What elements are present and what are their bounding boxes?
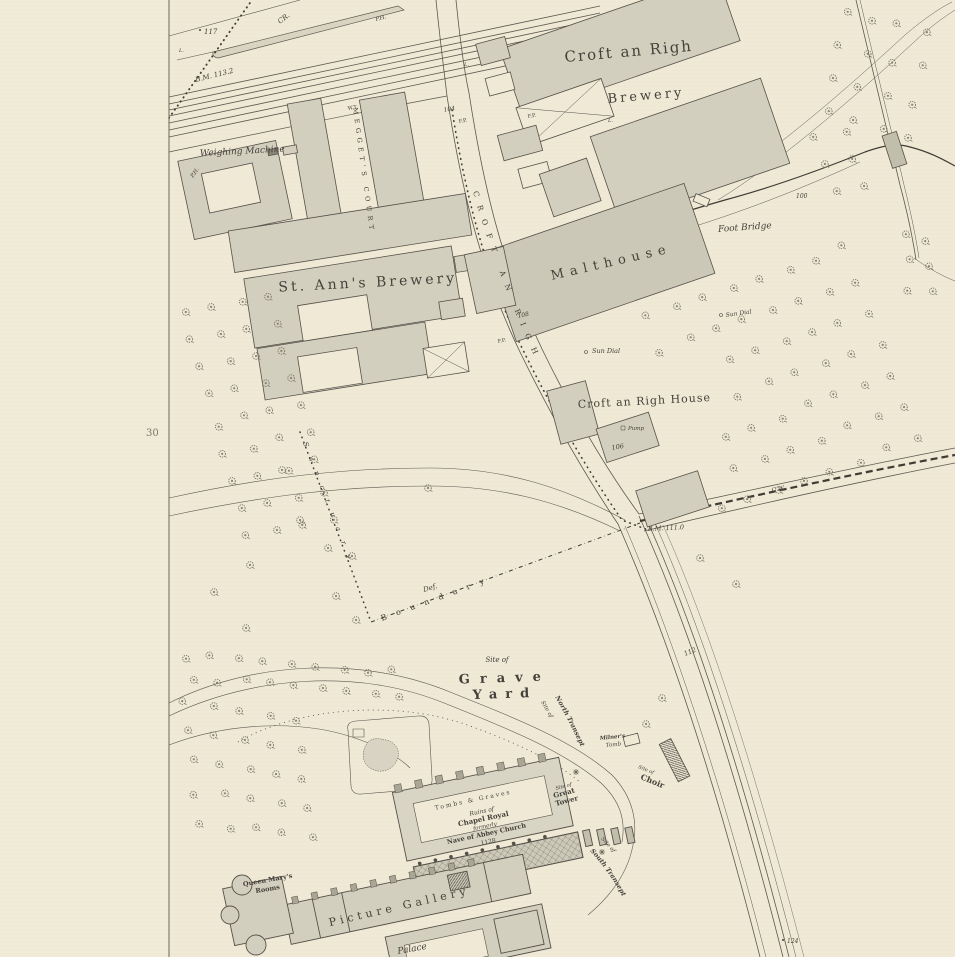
- tree-symbol: [216, 761, 224, 768]
- tree-symbol: [805, 400, 813, 407]
- fp-3: F.P.: [497, 337, 507, 345]
- tree-symbol: [253, 824, 261, 831]
- tree-symbol: [834, 42, 842, 49]
- tree-symbol: [826, 108, 834, 115]
- tree-symbol: [858, 459, 866, 466]
- tree-symbol: [809, 329, 817, 336]
- tree-symbol: [320, 685, 328, 692]
- tree-symbol: [227, 358, 235, 365]
- tree-symbol: [843, 129, 851, 136]
- tree-symbol: [273, 771, 281, 778]
- tree-symbol: [231, 385, 239, 392]
- tree-symbol: [298, 776, 306, 783]
- tree-symbol: [307, 429, 315, 436]
- tree-symbol: [259, 658, 267, 665]
- boundary-label: Boundary: [380, 573, 495, 623]
- tree-symbol: [242, 532, 250, 539]
- tree-symbol: [243, 625, 251, 632]
- tree-symbol: [834, 320, 842, 327]
- tree-symbol: [823, 360, 831, 367]
- tree-symbol: [312, 664, 320, 671]
- tree-symbol: [848, 351, 856, 358]
- tree-symbol: [697, 555, 705, 562]
- tree-symbol: [247, 795, 255, 802]
- tree-symbol: [901, 404, 909, 411]
- north-transept-site-of: Site of: [539, 700, 554, 720]
- tree-symbol: [822, 161, 830, 168]
- tree-symbol: [861, 183, 869, 190]
- tree-symbol: [289, 661, 297, 668]
- tree-symbol: [906, 256, 914, 263]
- tree-symbol: [211, 589, 219, 596]
- tree-symbol: [730, 465, 738, 472]
- cw-label: C.W.: [771, 485, 785, 494]
- tree-symbol: [766, 378, 774, 385]
- tree-symbol: [915, 435, 923, 442]
- tree-symbol: [297, 517, 305, 524]
- tree-symbol: [723, 434, 731, 441]
- tree-symbol: [196, 821, 204, 828]
- tree-symbol: [893, 20, 901, 27]
- tree-symbol: [727, 356, 735, 363]
- benchmark-north: B.M. 113.2: [194, 67, 235, 85]
- tree-symbol: [659, 695, 667, 702]
- tree-symbol: [905, 135, 913, 142]
- tree-symbol: [795, 298, 803, 305]
- foot-bridge-symbol: [693, 194, 710, 207]
- tree-symbol: [206, 390, 214, 397]
- tree-symbol: [889, 59, 897, 66]
- tree-symbol: [241, 412, 249, 419]
- tree-symbol: [215, 423, 223, 430]
- croft-house-label: Croft an Righ House: [577, 391, 711, 411]
- sheet-margin-number-2: 30: [146, 428, 159, 439]
- tree-symbol: [783, 338, 791, 345]
- tree-symbol: [748, 425, 756, 432]
- tree-symbol: [885, 93, 893, 100]
- tree-symbol: [254, 473, 262, 480]
- graveyard-site-of: Site of: [485, 656, 509, 664]
- tree-symbol: [887, 373, 895, 380]
- tree-symbol: [699, 294, 707, 301]
- tree-symbol: [251, 445, 259, 452]
- tree-symbol: [219, 451, 227, 458]
- tree-symbol: [919, 62, 927, 69]
- wall-bridge: [882, 131, 907, 168]
- tree-symbol: [922, 238, 930, 245]
- road-south-east: [618, 516, 804, 957]
- tree-symbol: [838, 242, 846, 249]
- spot-height-124: 124: [787, 938, 799, 945]
- tree-symbol: [850, 117, 858, 124]
- spot-height-117: 117: [204, 28, 218, 36]
- pump-label: Pump: [627, 426, 644, 432]
- north-transept-label: North Transept: [553, 693, 587, 748]
- graveyard-yard: Yard: [471, 686, 537, 703]
- tree-symbol: [310, 834, 318, 841]
- tree-symbol: [214, 679, 222, 686]
- spot-height-104: 104: [443, 105, 456, 114]
- tree-symbol: [388, 666, 396, 673]
- tree-symbol: [826, 469, 834, 476]
- roadside-building: [659, 739, 690, 782]
- railway-siding: [213, 6, 404, 58]
- tree-symbol: [833, 188, 841, 195]
- tree-symbol: [191, 756, 199, 763]
- tree-symbol: [286, 467, 294, 474]
- croft-brewery-label-2: Brewery: [607, 85, 685, 107]
- tree-symbol: [239, 505, 247, 512]
- fp-1: F.P.: [458, 118, 468, 125]
- milners-tomb-symbol: [623, 733, 640, 746]
- tree-symbol: [299, 747, 307, 754]
- buildings-layer: [178, 0, 907, 782]
- tree-symbol: [733, 581, 741, 588]
- tree-symbol: [208, 304, 216, 311]
- tree-symbol: [343, 688, 351, 695]
- tree-symbol: [810, 134, 818, 141]
- tree-symbol: [264, 500, 272, 507]
- tree-symbol: [643, 721, 651, 728]
- map-sheet[interactable]: 30 117 CR. B.M. 113.2 P.H. P.H. Weighing…: [0, 0, 955, 957]
- tree-symbol: [222, 790, 230, 797]
- milners-tomb-label-1: Milner's: [599, 733, 626, 742]
- tree-symbol: [904, 287, 912, 294]
- sun-dial-2-label: Sun Dial: [592, 347, 620, 355]
- tree-symbol: [830, 75, 838, 82]
- lamp-2: L.: [463, 62, 469, 68]
- garden-mound: [363, 739, 398, 771]
- tree-symbol: [185, 727, 193, 734]
- tree-symbol: [909, 101, 917, 108]
- tree-symbol: [791, 369, 799, 376]
- tree-symbol: [373, 691, 381, 698]
- shrub-symbol: [573, 769, 579, 775]
- tree-symbol: [752, 347, 760, 354]
- tree-symbol: [279, 800, 287, 807]
- tree-symbol: [243, 326, 251, 333]
- tree-symbol: [930, 288, 938, 295]
- tree-symbol: [278, 829, 286, 836]
- tree-symbol: [229, 478, 237, 485]
- sanctuary-label: Sanctuary: [301, 441, 357, 570]
- tree-symbol: [656, 349, 664, 356]
- tree-symbol: [875, 413, 883, 420]
- map-svg: 30 117 CR. B.M. 113.2 P.H. P.H. Weighing…: [0, 0, 955, 957]
- tree-symbol: [756, 276, 764, 283]
- tree-symbol: [325, 545, 333, 552]
- tree-symbol: [883, 444, 891, 451]
- tree-symbol: [267, 742, 275, 749]
- tree-symbol: [903, 231, 911, 238]
- tree-symbol: [844, 422, 852, 429]
- tree-symbol: [819, 437, 827, 444]
- tree-symbol: [341, 667, 349, 674]
- tree-symbol: [827, 289, 835, 296]
- tree-symbol: [242, 737, 250, 744]
- tree-symbol: [183, 309, 191, 316]
- tree-symbol: [731, 285, 739, 292]
- lamp-3: L.: [607, 118, 613, 124]
- tree-symbol: [674, 303, 682, 310]
- tree-symbol: [179, 698, 187, 705]
- tree-symbol: [190, 791, 198, 798]
- tree-symbol: [304, 805, 312, 812]
- foot-bridge-label: Foot Bridge: [717, 221, 772, 235]
- tree-symbol: [734, 393, 742, 400]
- tree-symbol: [854, 84, 862, 91]
- tree-symbol: [279, 467, 287, 474]
- tree-symbol: [353, 617, 361, 624]
- tree-symbol: [787, 447, 795, 454]
- tree-symbol: [267, 713, 275, 720]
- sheet-margin: [0, 0, 169, 957]
- tree-symbol: [186, 336, 194, 343]
- tree-symbol: [274, 527, 282, 534]
- tree-symbol: [266, 407, 274, 414]
- tree-symbol: [830, 391, 838, 398]
- tree-symbol: [396, 693, 404, 700]
- tree-symbol: [869, 17, 877, 24]
- tree-symbol: [642, 312, 650, 319]
- tree-symbol: [236, 708, 244, 715]
- tree-symbol: [779, 415, 787, 422]
- tree-symbol: [719, 505, 727, 512]
- tree-symbol: [247, 766, 255, 773]
- tree-symbol: [844, 9, 852, 16]
- tree-symbol: [276, 434, 284, 441]
- tree-symbol: [862, 382, 870, 389]
- tree-symbol: [770, 307, 778, 314]
- tree-symbol: [183, 655, 191, 662]
- milners-tomb-label-2: Tomb: [606, 741, 622, 749]
- tree-symbol: [762, 456, 770, 463]
- tree-symbol: [191, 677, 199, 684]
- tree-symbol: [211, 703, 219, 710]
- tree-symbol: [787, 267, 795, 274]
- tree-symbol: [879, 342, 887, 349]
- tree-symbol: [333, 593, 341, 600]
- tree-symbol: [298, 402, 306, 409]
- tree-symbol: [852, 279, 860, 286]
- tree-symbol: [295, 495, 303, 502]
- tree-symbol: [196, 363, 204, 370]
- tree-symbol: [290, 682, 298, 689]
- lamp-1: L.: [178, 48, 184, 54]
- tree-symbol: [239, 299, 247, 306]
- tree-symbol: [206, 652, 214, 659]
- tree-symbol: [227, 825, 235, 832]
- tree-symbol: [218, 331, 226, 338]
- cr-boundary-label: CR.: [276, 11, 291, 25]
- benchmark-south: B.M. 111.0: [647, 523, 685, 533]
- spot-height-100: 100: [796, 193, 808, 200]
- tree-symbol: [236, 655, 244, 662]
- tree-symbol: [866, 311, 874, 318]
- tree-symbol: [713, 325, 721, 332]
- tree-symbol: [880, 126, 888, 133]
- spot-height-112: 112: [683, 646, 698, 658]
- south-transept-label: South Transept: [589, 847, 628, 897]
- tree-symbol: [813, 257, 821, 264]
- graveyard-grave: Grave: [459, 669, 552, 687]
- tree-symbol: [687, 334, 695, 341]
- tree-symbol: [243, 676, 251, 683]
- glass-roof-building: [423, 342, 469, 378]
- tree-symbol: [247, 562, 255, 569]
- boundary-def-label: Def.: [421, 582, 438, 594]
